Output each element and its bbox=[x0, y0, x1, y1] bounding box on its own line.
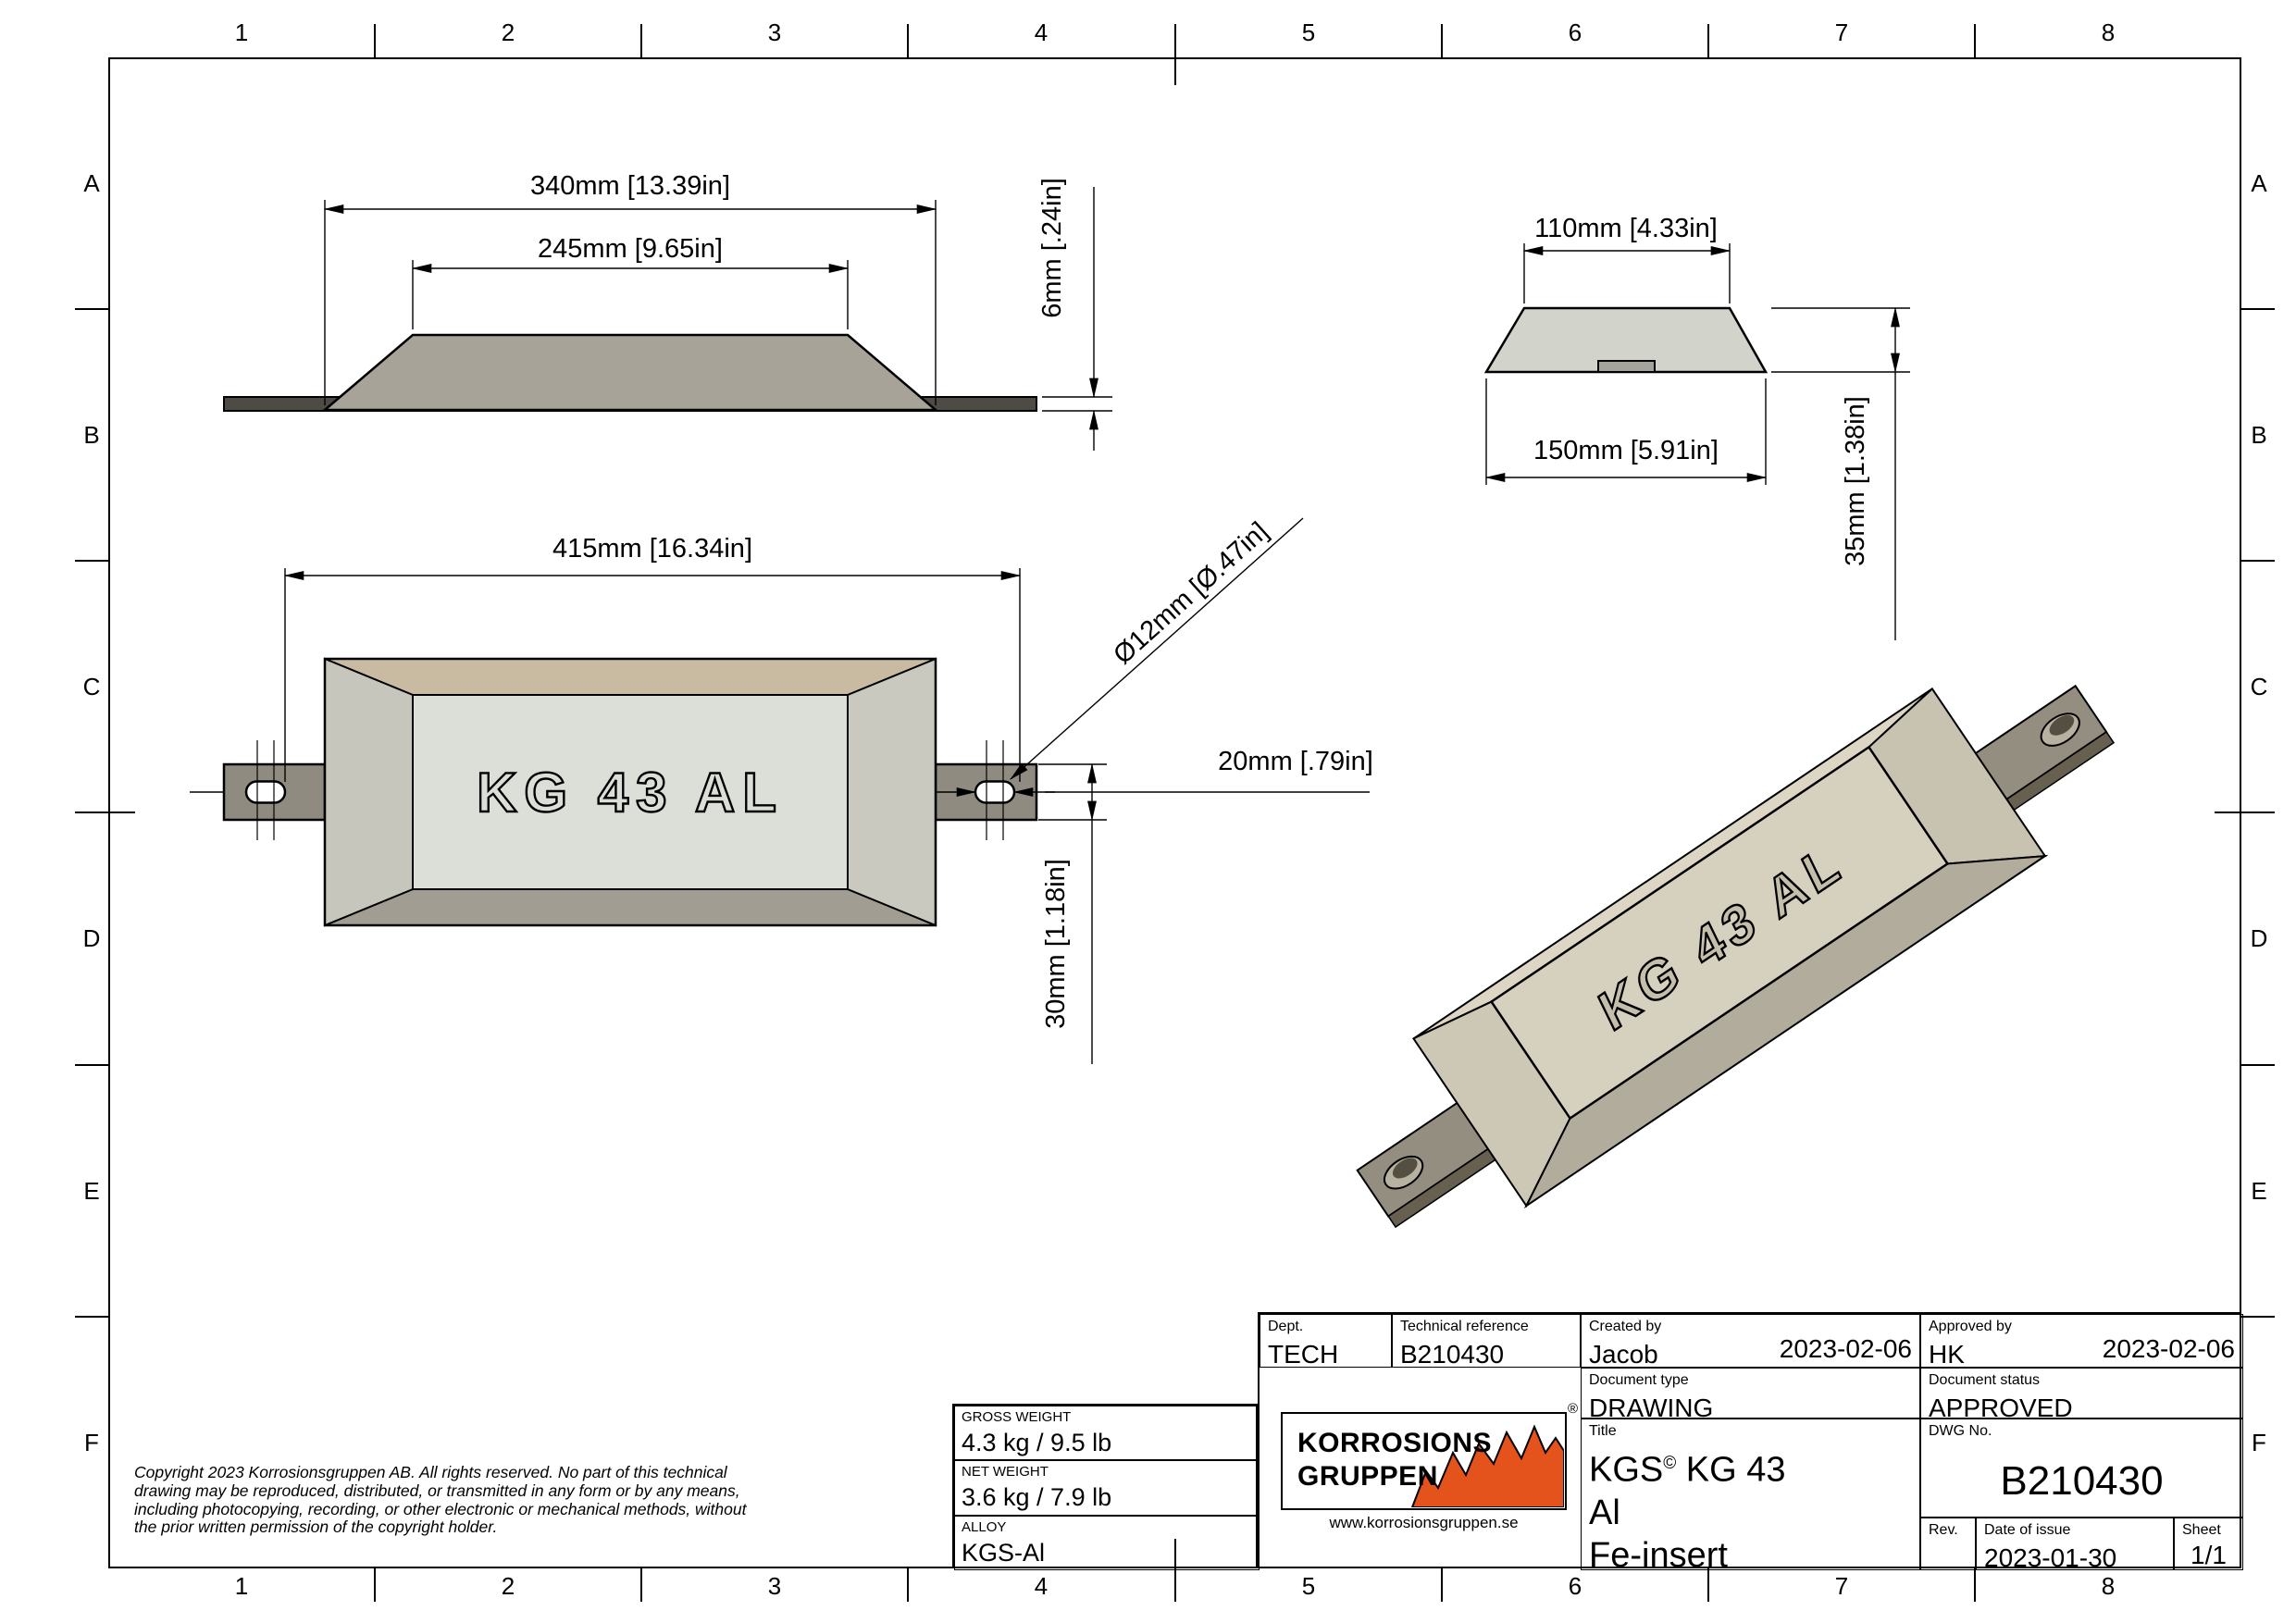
zone-col-label-top: 2 bbox=[502, 20, 515, 44]
copyright-note: Copyright 2023 Korrosionsgruppen AB. All… bbox=[134, 1464, 773, 1537]
technical-reference-label: Technical reference bbox=[1393, 1315, 1580, 1334]
logo-text: KORROSIONS GRUPPEN bbox=[1297, 1427, 1492, 1493]
zone-col-label-bottom: 3 bbox=[768, 1574, 781, 1598]
title-line-2: Al bbox=[1582, 1492, 1919, 1534]
copyright-line: including photocopying, recording, or ot… bbox=[134, 1501, 773, 1519]
approved-date: 2023-02-06 bbox=[2103, 1334, 2235, 1364]
zone-row-label-left: B bbox=[83, 423, 99, 447]
sheet-cell: Sheet 1/1 bbox=[2174, 1518, 2243, 1570]
dept-label: Dept. bbox=[1260, 1315, 1391, 1334]
logo-line-1: KORROSIONS bbox=[1297, 1427, 1492, 1460]
zone-row-label-right: E bbox=[2251, 1179, 2266, 1203]
document-status-label: Document status bbox=[1921, 1369, 2242, 1388]
document-status-cell: Document status APPROVED bbox=[1920, 1368, 2243, 1419]
zone-row-label-left: E bbox=[83, 1179, 99, 1203]
document-type-cell: Document type DRAWING bbox=[1581, 1368, 1920, 1419]
zone-row-label-right: B bbox=[2251, 423, 2266, 447]
alloy-cell: ALLOY KGS-Al bbox=[954, 1516, 1260, 1570]
zone-row-label-right: F bbox=[2252, 1431, 2266, 1455]
zone-col-label-bottom: 2 bbox=[502, 1574, 515, 1598]
zone-row-label-left: C bbox=[83, 675, 101, 699]
created-by-label: Created by bbox=[1582, 1315, 1919, 1334]
zone-col-label-bottom: 5 bbox=[1302, 1574, 1315, 1598]
zone-col-label-bottom: 7 bbox=[1835, 1574, 1848, 1598]
zone-col-label-top: 4 bbox=[1035, 20, 1048, 44]
sheet-label: Sheet bbox=[2175, 1518, 2242, 1538]
rev-label: Rev. bbox=[1921, 1518, 1975, 1538]
zone-col-label-top: 7 bbox=[1835, 20, 1848, 44]
dwg-no-cell: DWG No. B210430 bbox=[1920, 1419, 2243, 1518]
zone-col-label-bottom: 1 bbox=[235, 1574, 248, 1598]
zone-col-label-bottom: 8 bbox=[2102, 1574, 2115, 1598]
drawing-sheet: 340mm [13.39in] 245mm [9.65in] 6mm [.24i… bbox=[0, 0, 2296, 1623]
company-logo: KORROSIONS GRUPPEN bbox=[1281, 1412, 1567, 1510]
gross-weight-cell: GROSS WEIGHT 4.3 kg / 9.5 lb bbox=[954, 1406, 1260, 1460]
zone-row-label-right: D bbox=[2251, 926, 2268, 950]
gross-weight-value: 4.3 kg / 9.5 lb bbox=[955, 1425, 1259, 1456]
zone-col-label-top: 1 bbox=[235, 20, 248, 44]
copyright-symbol: © bbox=[1663, 1454, 1676, 1473]
technical-reference-cell: Technical reference B210430 bbox=[1392, 1314, 1581, 1368]
sheet-value: 1/1 bbox=[2175, 1541, 2242, 1570]
zone-row-label-left: F bbox=[84, 1431, 99, 1455]
date-of-issue-cell: Date of issue 2023-01-30 bbox=[1976, 1518, 2174, 1570]
title-block: Dept. TECH Technical reference B210430 C… bbox=[1258, 1312, 2241, 1568]
zone-row-label-right: C bbox=[2251, 675, 2268, 699]
document-status-value: APPROVED bbox=[1921, 1388, 2242, 1422]
net-weight-cell: NET WEIGHT 3.6 kg / 7.9 lb bbox=[954, 1460, 1260, 1516]
alloy-value: KGS-Al bbox=[955, 1535, 1259, 1566]
title-line-1: KGS© KG 43 bbox=[1582, 1443, 1919, 1492]
created-by-cell: Created by Jacob 2023-02-06 bbox=[1581, 1314, 1920, 1368]
zone-col-label-bottom: 4 bbox=[1035, 1574, 1048, 1598]
date-of-issue-label: Date of issue bbox=[1977, 1518, 2173, 1538]
dept-cell: Dept. TECH bbox=[1260, 1314, 1392, 1368]
title-line-3: Fe-insert bbox=[1582, 1534, 1919, 1577]
gross-weight-label: GROSS WEIGHT bbox=[955, 1406, 1259, 1425]
net-weight-value: 3.6 kg / 7.9 lb bbox=[955, 1480, 1259, 1510]
zone-row-label-right: A bbox=[2251, 171, 2266, 195]
zone-col-label-top: 3 bbox=[768, 20, 781, 44]
zone-row-label-left: D bbox=[83, 926, 101, 950]
created-date: 2023-02-06 bbox=[1780, 1334, 1912, 1364]
registered-symbol: ® bbox=[1568, 1401, 1578, 1417]
alloy-label: ALLOY bbox=[955, 1517, 1259, 1535]
copyright-line: Copyright 2023 Korrosionsgruppen AB. All… bbox=[134, 1464, 773, 1482]
technical-reference-value: B210430 bbox=[1393, 1334, 1580, 1369]
title-series: KGS bbox=[1589, 1451, 1663, 1490]
zone-col-label-top: 8 bbox=[2102, 20, 2115, 44]
zone-col-label-bottom: 6 bbox=[1569, 1574, 1582, 1598]
rev-cell: Rev. bbox=[1920, 1518, 1976, 1570]
zone-col-label-top: 5 bbox=[1302, 20, 1315, 44]
title-label: Title bbox=[1582, 1419, 1919, 1439]
document-type-label: Document type bbox=[1582, 1369, 1919, 1388]
net-weight-label: NET WEIGHT bbox=[955, 1461, 1259, 1480]
document-type-value: DRAWING bbox=[1582, 1388, 1919, 1422]
logo-url: www.korrosionsgruppen.se bbox=[1281, 1514, 1567, 1532]
dept-value: TECH bbox=[1260, 1334, 1391, 1369]
title-cell: Title KGS© KG 43 Al Fe-insert bbox=[1581, 1419, 1920, 1570]
zone-col-label-top: 6 bbox=[1569, 20, 1582, 44]
copyright-line: drawing may be reproduced, distributed, … bbox=[134, 1482, 773, 1501]
logo-line-2: GRUPPEN bbox=[1297, 1460, 1492, 1493]
approved-by-cell: Approved by HK 2023-02-06 bbox=[1920, 1314, 2243, 1368]
dwg-no-value: B210430 bbox=[1921, 1458, 2242, 1505]
copyright-line: the prior written permission of the copy… bbox=[134, 1518, 773, 1537]
approved-by-label: Approved by bbox=[1921, 1315, 2242, 1334]
dwg-no-label: DWG No. bbox=[1921, 1419, 2242, 1439]
date-of-issue-value: 2023-01-30 bbox=[1977, 1538, 2173, 1572]
weight-block: GROSS WEIGHT 4.3 kg / 9.5 lb NET WEIGHT … bbox=[952, 1404, 1258, 1568]
rev-value bbox=[1921, 1538, 1975, 1544]
title-model: KG 43 bbox=[1676, 1451, 1785, 1490]
zone-row-label-left: A bbox=[83, 171, 99, 195]
